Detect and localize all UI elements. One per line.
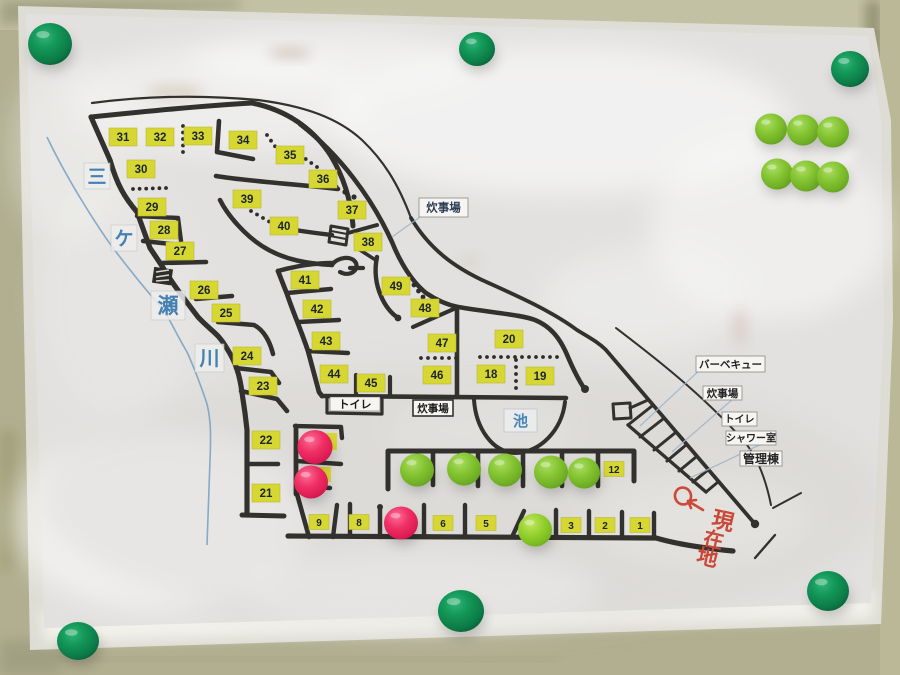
svg-text:1: 1 [637,521,643,532]
svg-text:37: 37 [346,205,359,217]
svg-text:39: 39 [241,194,254,206]
svg-text:9: 9 [316,518,322,529]
svg-text:25: 25 [220,308,233,320]
svg-text:20: 20 [503,334,516,346]
svg-text:瀬: 瀬 [158,295,179,318]
svg-text:12: 12 [608,465,620,476]
svg-text:5: 5 [483,519,489,530]
svg-text:38: 38 [362,237,375,249]
svg-text:26: 26 [198,285,211,297]
svg-text:川: 川 [199,348,220,370]
svg-text:27: 27 [174,246,187,258]
svg-text:バーベキュー: バーベキュー [699,359,762,371]
svg-text:21: 21 [260,488,273,500]
svg-text:32: 32 [154,132,167,144]
svg-text:8: 8 [356,518,362,529]
svg-text:2: 2 [602,521,608,532]
svg-text:41: 41 [299,275,312,287]
svg-text:30: 30 [135,164,148,176]
svg-text:42: 42 [311,304,324,316]
svg-text:池: 池 [513,412,528,430]
svg-text:炊事場: 炊事場 [426,201,461,215]
svg-text:36: 36 [317,174,330,186]
svg-text:49: 49 [390,281,403,293]
svg-text:28: 28 [158,225,171,237]
svg-text:23: 23 [257,381,270,393]
svg-text:29: 29 [146,202,159,214]
svg-text:トイレ: トイレ [725,414,755,426]
svg-text:3: 3 [568,521,574,532]
svg-text:31: 31 [117,132,130,144]
svg-text:40: 40 [278,221,291,233]
svg-text:炊事場: 炊事場 [417,402,449,415]
svg-text:管理棟: 管理棟 [743,451,780,466]
svg-text:22: 22 [260,435,273,447]
svg-text:34: 34 [237,135,250,147]
svg-text:ケ: ケ [114,228,133,250]
svg-text:47: 47 [436,338,449,350]
svg-text:19: 19 [534,371,547,383]
svg-text:18: 18 [485,369,498,381]
svg-text:33: 33 [192,131,205,143]
svg-text:三: 三 [87,167,106,188]
svg-text:43: 43 [320,336,333,348]
svg-text:炊事場: 炊事場 [707,387,739,400]
svg-text:45: 45 [365,378,378,390]
svg-text:48: 48 [419,303,432,315]
svg-text:46: 46 [431,370,444,382]
svg-text:44: 44 [328,369,341,381]
svg-text:トイレ: トイレ [339,398,372,411]
svg-text:シャワー室: シャワー室 [726,432,776,445]
svg-text:35: 35 [284,150,297,162]
svg-text:24: 24 [241,351,254,363]
svg-text:6: 6 [440,519,446,530]
